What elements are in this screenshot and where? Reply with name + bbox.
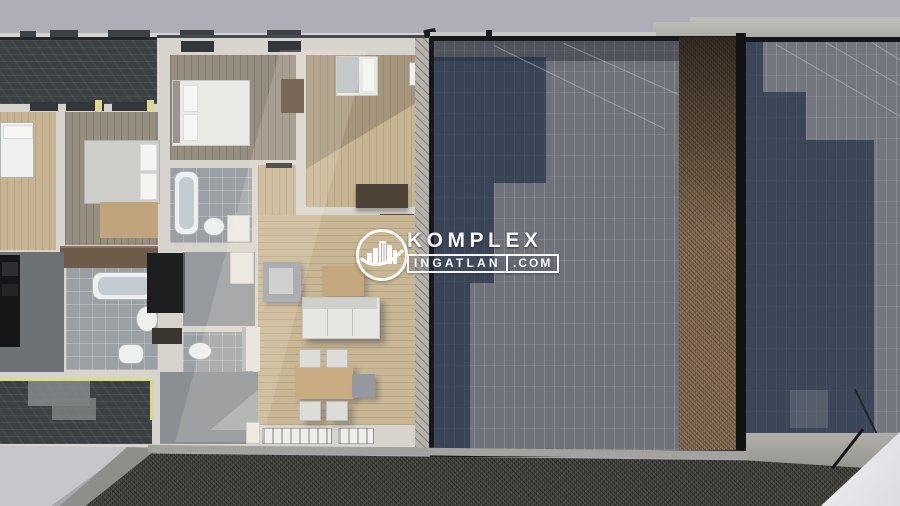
- ground: [0, 430, 900, 506]
- desk: [356, 184, 408, 208]
- bed-pillow: [363, 59, 374, 91]
- bathtub-basin: [179, 177, 194, 229]
- insulation-edge: [150, 380, 154, 420]
- overhead-wire: [871, 42, 900, 106]
- bathtub-basin: [98, 277, 150, 295]
- bed: [336, 56, 378, 96]
- window-lintel: [108, 30, 150, 37]
- skylight-patch: [790, 390, 828, 428]
- gravel-strip-shade: [679, 37, 736, 237]
- window: [181, 41, 214, 52]
- roof-edge-line: [157, 35, 433, 38]
- sofa: [302, 297, 380, 339]
- armchair-cushion: [269, 268, 293, 294]
- right-flat-roof: [746, 37, 900, 468]
- dining-chair: [326, 349, 348, 368]
- armchair: [263, 262, 301, 302]
- roof-divider: [736, 33, 746, 457]
- bed-pillow: [183, 85, 198, 112]
- tall-wardrobe: [147, 253, 185, 313]
- dining-table: [295, 365, 353, 399]
- door-threshold: [266, 163, 292, 168]
- building-shadow: [746, 42, 763, 433]
- deck-light-patch: [52, 398, 96, 420]
- sofa-back: [303, 298, 377, 309]
- bed-pillow: [3, 125, 33, 139]
- bed-pillow: [140, 144, 157, 171]
- bath-cabinet: [227, 215, 250, 242]
- watermark-brand-tld: .COM: [506, 254, 559, 273]
- bed-headboard: [173, 81, 180, 143]
- side-table: [352, 374, 375, 398]
- toilet: [203, 217, 225, 236]
- sofa-seam: [327, 309, 328, 336]
- dining-chair: [326, 401, 348, 421]
- watermark: KOMPLEX INGATLAN .COM: [350, 214, 590, 284]
- dining-chair: [299, 401, 321, 421]
- bed-bench: [100, 202, 158, 238]
- render-scene: KOMPLEX INGATLAN .COM: [0, 0, 900, 506]
- dresser: [60, 246, 158, 268]
- building-shadow: [763, 92, 806, 433]
- watermark-brand: KOMPLEX: [407, 229, 542, 253]
- bathtub: [174, 171, 199, 235]
- toilet: [118, 344, 144, 364]
- bed-pillow: [183, 114, 198, 141]
- window: [30, 102, 58, 111]
- toilet: [188, 342, 212, 360]
- roof-vent: [486, 30, 492, 37]
- window-lintel: [20, 31, 36, 37]
- bed: [172, 80, 250, 146]
- bed: [0, 122, 34, 178]
- roof-tiles: [746, 42, 900, 433]
- bed-blanket: [337, 57, 359, 93]
- bed: [84, 140, 160, 204]
- kitchen-appliance: [2, 262, 18, 276]
- insulation-mark: [147, 100, 154, 111]
- entry-cabinet: [230, 252, 254, 284]
- wardrobe: [281, 79, 304, 113]
- kitchen-appliance: [2, 284, 18, 296]
- insulation-edge: [0, 378, 152, 381]
- building-shadow: [434, 283, 470, 450]
- dining-chair: [299, 349, 321, 368]
- gravel-yard: [0, 430, 900, 506]
- bed-pillow: [140, 173, 157, 200]
- roof-gravel-strip: [679, 37, 736, 450]
- window: [268, 41, 301, 52]
- wc-vanity: [152, 328, 182, 344]
- sofa-seam: [352, 309, 353, 336]
- insulation-mark: [95, 100, 102, 111]
- antenna-rod: [831, 428, 864, 469]
- window-lintel: [50, 30, 78, 37]
- watermark-brand-line2: INGATLAN: [407, 254, 508, 273]
- kitchen-counter-strip: [242, 327, 260, 371]
- roof-terrace-top: [0, 37, 157, 104]
- logo-buildings-icon: [360, 237, 406, 271]
- window: [112, 102, 148, 111]
- building-shadow: [434, 57, 546, 183]
- overhead-wire: [826, 42, 900, 133]
